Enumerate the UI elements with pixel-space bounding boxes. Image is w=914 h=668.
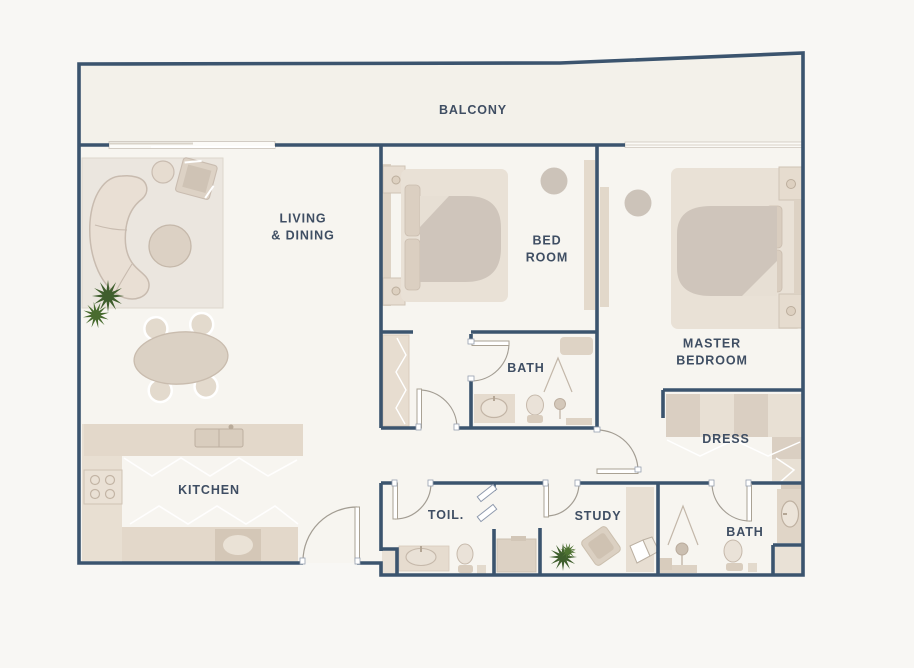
sink xyxy=(481,399,507,418)
towel-stand xyxy=(676,543,688,555)
room-label-dress: DRESS xyxy=(702,431,750,448)
kitchen-counter-bottom xyxy=(122,527,298,563)
bath-shelf xyxy=(560,337,593,355)
pouf xyxy=(541,168,568,195)
room-label-master-bath: BATH xyxy=(726,524,763,541)
coffee-table xyxy=(149,225,191,267)
towel-stand xyxy=(555,399,566,410)
floor-plan: BALCONY LIVING & DINING BED ROOM MASTER … xyxy=(0,0,914,668)
shower-stall xyxy=(497,539,536,572)
bedroom-wardrobe xyxy=(584,160,595,310)
room-label-toilet: TOIL. xyxy=(428,507,464,524)
door-leaf xyxy=(544,484,549,517)
stool xyxy=(625,190,652,217)
closet-column xyxy=(383,335,409,426)
toilet xyxy=(457,544,473,564)
tv-console xyxy=(600,187,609,307)
armchair xyxy=(152,161,174,183)
pillow xyxy=(405,239,420,290)
door-leaf xyxy=(355,507,360,561)
door-leaf xyxy=(747,484,752,521)
toilet xyxy=(724,540,742,562)
kitchen-counter-top xyxy=(84,424,303,456)
floor-plan-drawing xyxy=(0,0,914,668)
door-leaf xyxy=(597,469,638,474)
bath-bench xyxy=(566,418,592,425)
room-label-bedroom: BED ROOM xyxy=(526,233,569,266)
room-label-balcony: BALCONY xyxy=(439,102,507,119)
room-label-study: STUDY xyxy=(575,508,622,525)
room-label-living-dining: LIVING & DINING xyxy=(271,211,334,244)
room-label-kitchen: KITCHEN xyxy=(178,482,240,499)
pillow xyxy=(405,185,420,236)
toilet xyxy=(527,395,544,415)
door-leaf xyxy=(472,341,509,346)
door-leaf xyxy=(417,389,422,428)
cooktop xyxy=(84,470,122,504)
room-label-bath: BATH xyxy=(507,360,544,377)
room-label-master-bedroom: MASTER BEDROOM xyxy=(676,336,748,369)
door-leaf xyxy=(393,483,398,519)
